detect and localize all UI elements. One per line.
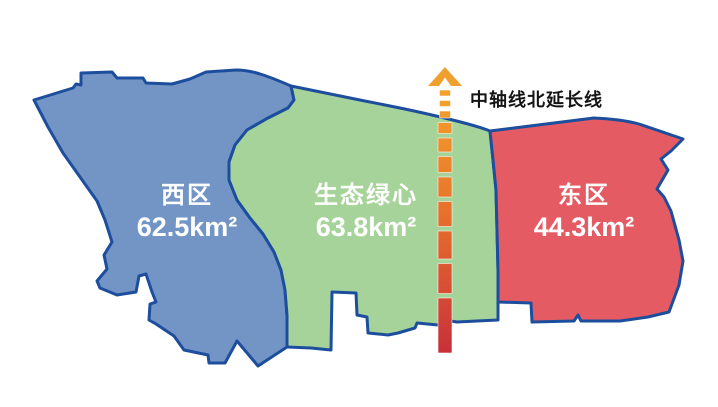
west-district-label: 西区 62.5km² [137, 181, 238, 244]
green-heart-area: 63.8km² [314, 210, 418, 244]
west-district-name: 西区 [137, 181, 238, 210]
central-axis-dashed-line [438, 90, 452, 353]
green-heart-label: 生态绿心 63.8km² [314, 181, 418, 244]
east-district-area: 44.3km² [534, 210, 635, 244]
axis-line-caption: 中轴线北延长线 [470, 86, 603, 112]
map-infographic: 西区 62.5km² 生态绿心 63.8km² 东区 44.3km² 中轴线北延… [0, 0, 718, 407]
green-heart-name: 生态绿心 [314, 181, 418, 210]
axis-arrow-icon [428, 67, 462, 86]
east-district-label: 东区 44.3km² [534, 181, 635, 244]
east-district-name: 东区 [534, 181, 635, 210]
west-district-area: 62.5km² [137, 210, 238, 244]
